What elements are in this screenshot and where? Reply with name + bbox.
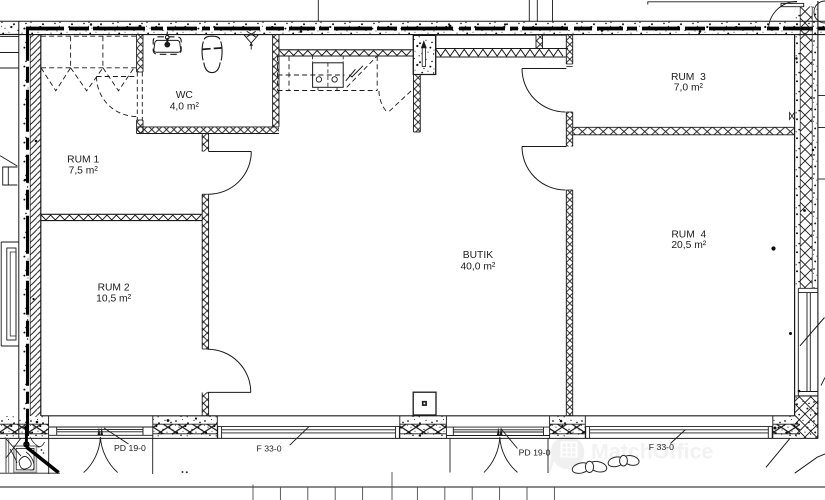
svg-text:BUTIK: BUTIK xyxy=(463,250,493,261)
svg-text:20,5 m²: 20,5 m² xyxy=(671,240,706,251)
svg-text:7,0 m²: 7,0 m² xyxy=(674,82,704,93)
svg-text:4,0 m²: 4,0 m² xyxy=(170,102,200,113)
svg-text:F 33-0: F 33-0 xyxy=(257,443,282,453)
svg-text:WC: WC xyxy=(176,90,194,101)
svg-text:PD 19-0: PD 19-0 xyxy=(114,443,146,453)
svg-text:RUM 2: RUM 2 xyxy=(98,282,130,293)
svg-text:7,5 m²: 7,5 m² xyxy=(69,165,99,176)
svg-text:PD 19-0: PD 19-0 xyxy=(519,447,551,457)
svg-text:RUM 1: RUM 1 xyxy=(67,154,99,165)
svg-text:10,5 m²: 10,5 m² xyxy=(96,293,131,304)
svg-text:40,0 m²: 40,0 m² xyxy=(460,261,495,272)
svg-text:F 33-0: F 33-0 xyxy=(649,442,674,452)
svg-text:RUM 4: RUM 4 xyxy=(671,229,706,240)
